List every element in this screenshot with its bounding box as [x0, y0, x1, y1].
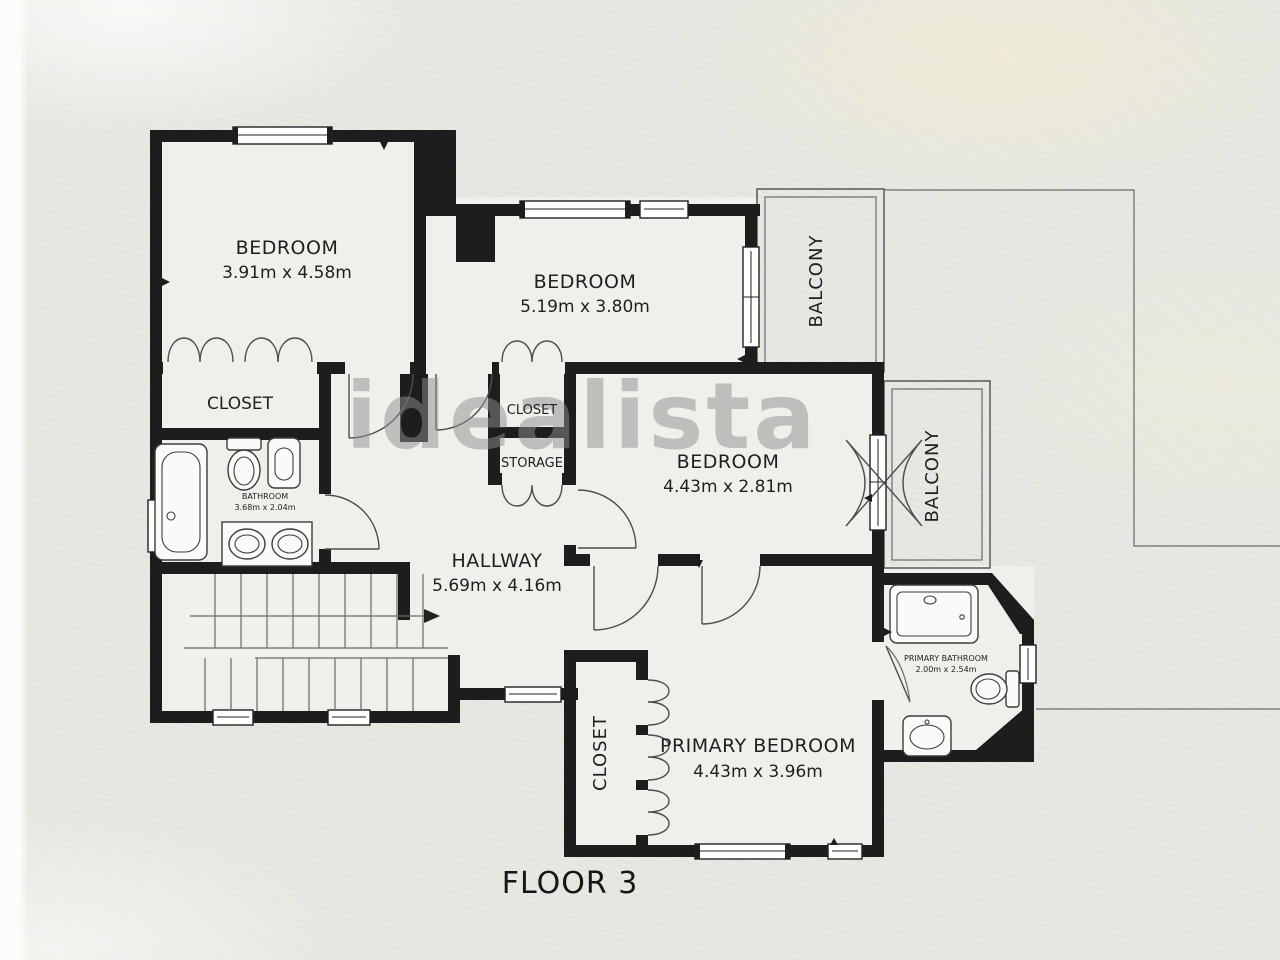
window	[233, 127, 332, 144]
window	[640, 201, 688, 218]
floor-title: FLOOR 3	[502, 866, 639, 901]
balcony-right-label: BALCONY	[922, 430, 943, 523]
storage-label: STORAGE	[501, 456, 563, 471]
bedroom-3-label: BEDROOM	[677, 451, 780, 473]
toilet-icon-primary	[971, 671, 1019, 707]
closet-left-label: CLOSET	[207, 394, 274, 414]
primary-bedroom-label: PRIMARY BEDROOM	[660, 735, 856, 757]
bathtub-icon	[155, 444, 207, 560]
window	[520, 201, 630, 218]
bedroom-2-dims: 5.19m x 3.80m	[520, 297, 650, 317]
window	[743, 247, 759, 347]
primary-bathroom-dims: 2.00m x 2.54m	[915, 665, 976, 674]
window	[828, 844, 862, 859]
bathroom-dims: 3.68m x 2.04m	[234, 503, 295, 512]
window	[213, 710, 253, 725]
window	[505, 687, 561, 702]
balcony-top-label: BALCONY	[806, 235, 827, 328]
window	[328, 710, 370, 725]
primary-bathroom-label: PRIMARY BATHROOM	[904, 654, 988, 663]
hallway-label: HALLWAY	[451, 550, 542, 572]
bedroom-1-label: BEDROOM	[236, 237, 339, 259]
shower-tub-icon	[890, 585, 978, 643]
floor-plan: idealista BEDROOM 3.91m x 4.58m BEDROOM …	[0, 0, 1280, 960]
window	[1020, 645, 1036, 683]
double-sink-icon	[222, 522, 312, 566]
window	[695, 844, 790, 859]
toilet-icon	[227, 438, 261, 490]
bedroom-2-label: BEDROOM	[534, 271, 637, 293]
bathroom-label: BATHROOM	[242, 492, 288, 501]
primary-bedroom-dims: 4.43m x 3.96m	[693, 762, 823, 782]
hallway-dims: 5.69m x 4.16m	[432, 576, 562, 596]
closet-primary-label: CLOSET	[590, 715, 611, 791]
sink-icon-primary	[903, 716, 951, 756]
closet-center-label: CLOSET	[507, 403, 558, 418]
bedroom-3-dims: 4.43m x 2.81m	[663, 477, 793, 497]
bidet-icon	[268, 438, 300, 488]
bedroom-1-dims: 3.91m x 4.58m	[222, 263, 352, 283]
